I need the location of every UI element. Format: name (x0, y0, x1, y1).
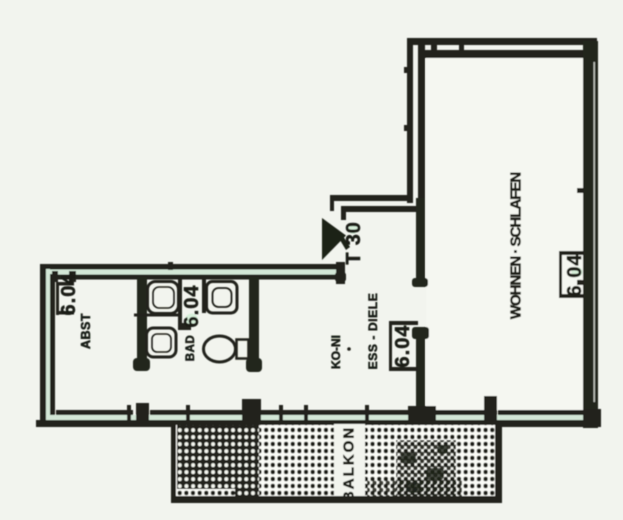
svg-text:6.04: 6.04 (392, 325, 414, 368)
svg-text:WOHNEN · SCHLAFEN: WOHNEN · SCHLAFEN (508, 173, 525, 319)
svg-text:ABST: ABST (79, 313, 93, 349)
svg-text:T 30: T 30 (343, 221, 365, 264)
svg-text:6.04: 6.04 (181, 285, 203, 328)
svg-text:6.04: 6.04 (58, 273, 80, 316)
svg-text:BAD: BAD (185, 335, 197, 361)
svg-text:BALKON: BALKON (341, 426, 358, 502)
svg-text:KO-NI: KO-NI (329, 335, 343, 369)
svg-text:ESS - DIELE: ESS - DIELE (366, 293, 380, 370)
svg-text:6.04: 6.04 (564, 254, 586, 297)
